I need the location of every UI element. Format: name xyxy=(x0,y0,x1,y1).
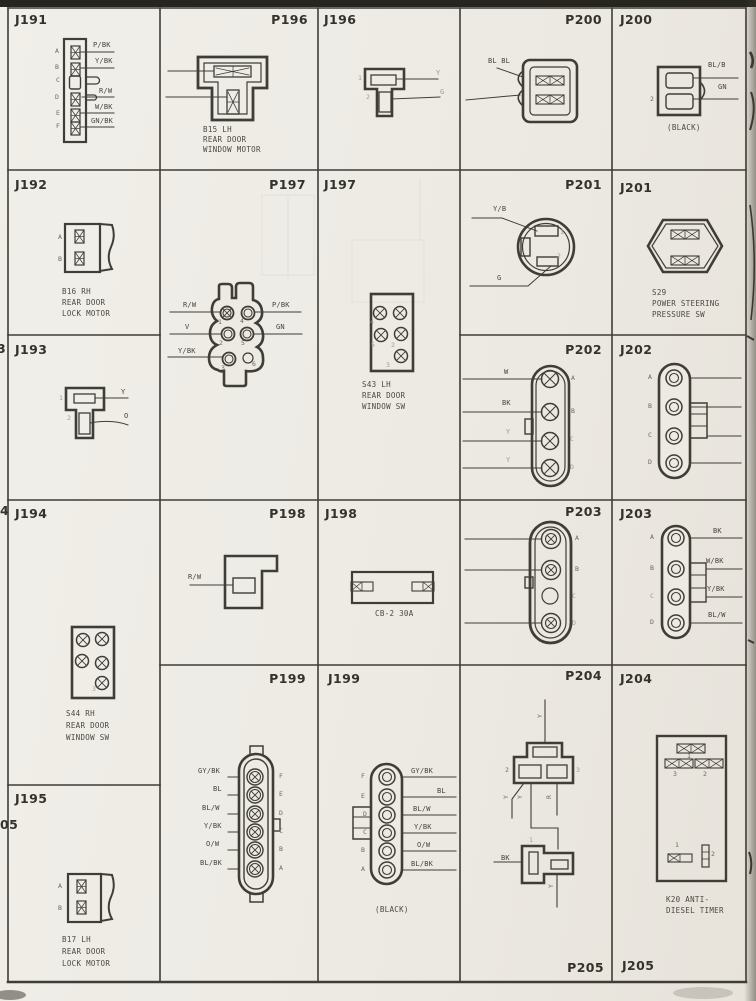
caption-line: (BLACK) xyxy=(375,905,409,914)
pin-label: 4 xyxy=(240,317,244,325)
pin-label: D xyxy=(650,618,654,626)
pin-label: 2 xyxy=(505,766,509,774)
wire-label: O/W xyxy=(417,841,430,849)
pin-label: 4 xyxy=(370,318,374,326)
pin-label: B xyxy=(361,846,365,854)
P204-connector-diagram xyxy=(494,700,573,907)
pin-label: F xyxy=(279,772,283,780)
cell-title-J199: J199 xyxy=(328,671,360,686)
caption-line: S44 RH xyxy=(66,709,95,718)
J201-connector-diagram xyxy=(648,220,722,272)
pin-label: F xyxy=(56,122,60,130)
pin-label: C xyxy=(56,76,60,84)
pin-label: A xyxy=(571,374,575,382)
wire-label: O/W xyxy=(206,840,219,848)
caption-line: REAR DOOR xyxy=(62,298,105,307)
wire-label: BL/W xyxy=(708,611,726,619)
caption-line: (BLACK) xyxy=(667,123,701,132)
wire-label: Y/BK xyxy=(414,823,432,831)
P196-connector-diagram xyxy=(166,57,267,120)
wire-label-rotated: R xyxy=(545,795,553,799)
pin-label: B xyxy=(650,564,654,572)
wire-label: BK xyxy=(501,854,510,862)
cell-title-J201: J201 xyxy=(620,180,652,195)
scan-right-edge-shadow xyxy=(744,0,756,1001)
cell-title-J194: J194 xyxy=(15,506,47,521)
cell-title-J205: J205 xyxy=(622,958,654,973)
caption-line: K20 ANTI- xyxy=(666,895,709,904)
pin-label: D xyxy=(363,810,367,818)
caption-line: WINDOW SW xyxy=(362,402,405,411)
pin-label: A xyxy=(279,864,283,872)
wire-label: G xyxy=(440,88,444,96)
wire-label: V xyxy=(185,323,189,331)
pin-label: 1 xyxy=(529,836,533,844)
wire-label: G xyxy=(497,274,501,282)
cell-title-P199: P199 xyxy=(236,671,306,686)
pin-label: 2 xyxy=(557,252,561,260)
cell-title-J193: J193 xyxy=(15,342,47,357)
cell-title-P202: P202 xyxy=(532,342,602,357)
cell-title-P197: P197 xyxy=(236,177,306,192)
wire-label: O xyxy=(124,412,128,420)
cell-title-J197: J197 xyxy=(324,177,356,192)
caption-line: DIESEL TIMER xyxy=(666,906,724,915)
pin-label: C xyxy=(650,592,654,600)
caption-line: S43 LH xyxy=(362,380,391,389)
scanned-connector-diagram-page: 3 4 05 J191 A B C D E F P/BK Y/BK R/W W/… xyxy=(0,0,756,1001)
wire-label-rotated: Y xyxy=(536,714,544,718)
cell-title-P200: P200 xyxy=(532,12,602,27)
pin-label: 3 xyxy=(386,361,390,369)
P200-connector-diagram xyxy=(466,60,577,122)
pin-label: D xyxy=(570,463,574,471)
pin-label: 2 xyxy=(67,414,71,422)
pin-label: B xyxy=(55,63,59,71)
pin-label: 3 xyxy=(92,685,96,693)
pin-label: F xyxy=(361,772,365,780)
caption-line: REAR DOOR xyxy=(66,721,109,730)
wire-label: R/W xyxy=(188,573,201,581)
P203-connector-diagram xyxy=(465,522,571,643)
wire-label: BL BL xyxy=(488,57,510,65)
caption-line: B15 LH xyxy=(203,125,232,134)
J192-connector-diagram xyxy=(65,224,114,272)
P197-connector-diagram xyxy=(168,283,302,386)
caption-line: LOCK MOTOR xyxy=(62,959,110,968)
margin-partial-label: 05 xyxy=(0,817,18,832)
cell-title-P204: P204 xyxy=(532,668,602,683)
pin-label: B xyxy=(58,255,62,263)
pin-label: 1 xyxy=(358,74,362,82)
P198-connector-diagram xyxy=(190,556,277,608)
wire-label: BL xyxy=(213,785,222,793)
pin-label: A xyxy=(55,47,59,55)
J197-connector-diagram xyxy=(371,294,413,371)
pin-label: 2 xyxy=(703,770,707,778)
cell-title-P205: P205 xyxy=(532,960,604,975)
caption-line: WINDOW MOTOR xyxy=(203,145,261,154)
wire-label: P/BK xyxy=(272,301,290,309)
wire-label: Y/B xyxy=(493,205,506,213)
P202-connector-diagram xyxy=(463,366,569,486)
pin-label: 3 xyxy=(576,766,580,774)
wire-label: BK xyxy=(713,527,722,535)
pin-label: 1 xyxy=(560,228,564,236)
pin-label: B xyxy=(58,904,62,912)
wire-label-rotated: Y xyxy=(502,795,510,799)
wire-label: Y xyxy=(506,428,510,436)
pin-label: E xyxy=(279,790,283,798)
pin-label: 2 xyxy=(391,341,395,349)
pin-label: C xyxy=(572,592,576,600)
wire-label: R/W xyxy=(183,301,196,309)
pin-label: 1 xyxy=(675,841,679,849)
pin-label: B xyxy=(279,845,283,853)
pin-label: B xyxy=(575,565,579,573)
pin-label: A xyxy=(58,882,62,890)
wire-label: W/BK xyxy=(95,103,113,111)
pin-label: 5 xyxy=(371,341,375,349)
pin-label: A xyxy=(650,533,654,541)
pin-label: A xyxy=(575,534,579,542)
pin-label: 6 xyxy=(252,360,256,368)
caption-line: WINDOW SW xyxy=(66,733,109,742)
caption-line: PRESSURE SW xyxy=(652,310,705,319)
pin-label: 2 xyxy=(711,850,715,858)
pin-label: C xyxy=(570,435,574,443)
margin-partial-label: 4 xyxy=(0,503,9,518)
J198-connector-diagram xyxy=(351,572,434,603)
pin-label: D xyxy=(279,809,283,817)
cell-title-J196: J196 xyxy=(324,12,356,27)
diagram-linework xyxy=(0,0,756,1001)
pin-label: C xyxy=(648,431,652,439)
pin-label: A xyxy=(58,233,62,241)
wire-label: P/BK xyxy=(93,41,111,49)
wire-label: GN xyxy=(276,323,285,331)
wire-label: GY/BK xyxy=(198,767,220,775)
caption-line: B17 LH xyxy=(62,935,91,944)
J203-connector-diagram xyxy=(662,526,742,638)
pin-label: E xyxy=(361,792,365,800)
pin-label: 2 xyxy=(219,339,223,347)
wire-label: Y/BK xyxy=(95,57,113,65)
P199-connector-diagram xyxy=(228,746,280,902)
pin-label: D xyxy=(648,458,652,466)
cell-title-P198: P198 xyxy=(236,506,306,521)
cell-title-J204: J204 xyxy=(620,671,652,686)
wire-label: Y xyxy=(436,69,440,77)
cell-title-J200: J200 xyxy=(620,12,652,27)
caption-line: CB-2 30A xyxy=(375,609,414,618)
J193-connector-diagram xyxy=(66,388,128,438)
wire-label: GY/BK xyxy=(411,767,433,775)
cell-title-P196: P196 xyxy=(238,12,308,27)
pin-label: D xyxy=(572,619,576,627)
wire-label: BK xyxy=(502,399,511,407)
wire-label-rotated: Y xyxy=(547,884,555,888)
J199-connector-diagram xyxy=(353,764,456,884)
pin-label: C xyxy=(279,827,283,835)
wire-label-rotated: Y xyxy=(516,795,524,799)
cell-title-P201: P201 xyxy=(532,177,602,192)
caption-line: LOCK MOTOR xyxy=(62,309,110,318)
pin-label: 1 xyxy=(687,752,691,760)
J202-connector-diagram xyxy=(659,364,741,478)
wire-label: Y xyxy=(506,456,510,464)
wire-label: Y/BK xyxy=(204,822,222,830)
wire-label: Y/BK xyxy=(178,347,196,355)
J204-connector-diagram xyxy=(657,736,726,881)
wire-label: BL/B xyxy=(708,61,726,69)
cell-title-P203: P203 xyxy=(532,504,602,519)
pin-label: B xyxy=(571,407,575,415)
pin-label: D xyxy=(55,93,59,101)
pin-label: A xyxy=(648,373,652,381)
pin-label: 2 xyxy=(650,95,654,103)
pin-label: 5 xyxy=(241,339,245,347)
caption-line: REAR DOOR xyxy=(203,135,246,144)
J200-connector-diagram xyxy=(658,67,738,115)
pin-label: 1 xyxy=(59,394,63,402)
pin-label: 3 xyxy=(221,364,225,372)
bleed-through-ghosts xyxy=(262,180,424,302)
caption-line: REAR DOOR xyxy=(62,947,105,956)
wire-label: BL/BK xyxy=(200,859,222,867)
cell-title-J202: J202 xyxy=(620,342,652,357)
cell-title-J203: J203 xyxy=(620,506,652,521)
pin-label: B xyxy=(648,402,652,410)
wire-label: BL xyxy=(437,787,446,795)
wire-label: BL/W xyxy=(413,805,431,813)
pin-label: E xyxy=(56,109,60,117)
caption-line: S29 xyxy=(652,288,666,297)
wire-label: Y/BK xyxy=(707,585,725,593)
cell-title-J198: J198 xyxy=(325,506,357,521)
wire-label: W xyxy=(504,368,508,376)
pin-label: A xyxy=(361,865,365,873)
wire-label: W/BK xyxy=(706,557,724,565)
cell-title-J195: J195 xyxy=(15,791,47,806)
pin-label: 2 xyxy=(366,93,370,101)
cell-title-J191: J191 xyxy=(15,12,47,27)
pin-label: 3 xyxy=(673,770,677,778)
wire-label: Y xyxy=(121,388,125,396)
margin-partial-label: 3 xyxy=(0,341,6,356)
pin-label: 1 xyxy=(218,318,222,326)
caption-line: REAR DOOR xyxy=(362,391,405,400)
pin-label: C xyxy=(363,828,367,836)
J195-connector-diagram xyxy=(68,874,114,922)
caption-line: B16 RH xyxy=(62,287,91,296)
cell-title-J192: J192 xyxy=(15,177,47,192)
wire-label: BL/W xyxy=(202,804,220,812)
J196-connector-diagram xyxy=(365,69,440,116)
wire-label: BL/BK xyxy=(411,860,433,868)
wire-label: GN/BK xyxy=(91,117,113,125)
caption-line: POWER STEERING xyxy=(652,299,719,308)
wire-label: GN xyxy=(718,83,727,91)
wire-label: R/W xyxy=(99,87,112,95)
